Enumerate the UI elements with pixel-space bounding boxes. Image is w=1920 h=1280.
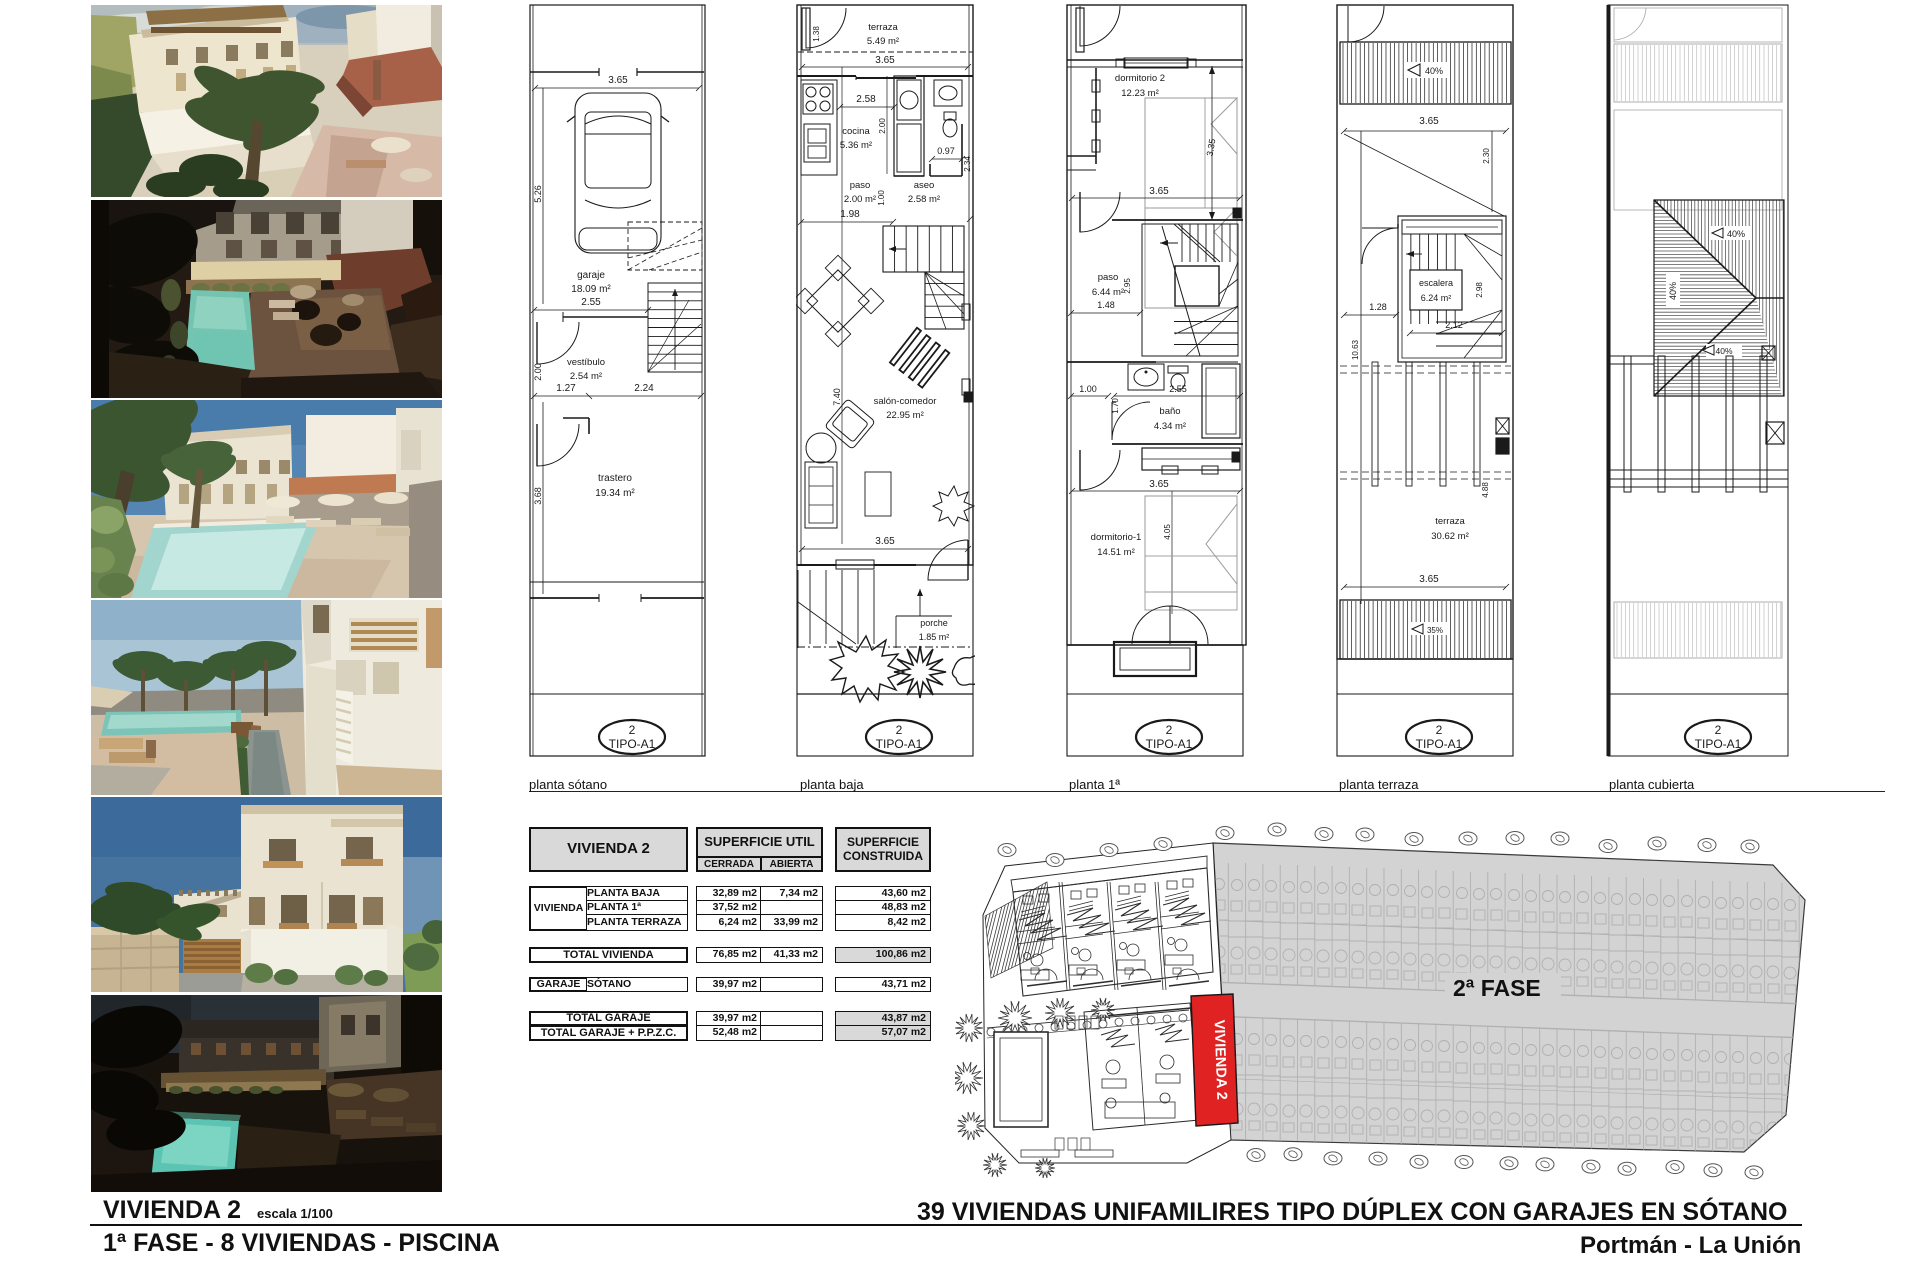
svg-text:aseo: aseo (914, 180, 935, 191)
svg-text:1.28: 1.28 (1369, 302, 1387, 312)
svg-text:3.35: 3.35 (1205, 138, 1218, 157)
svg-text:1.48: 1.48 (1097, 300, 1115, 310)
svg-text:12.23 m²: 12.23 m² (1121, 88, 1159, 99)
svg-text:1.00: 1.00 (877, 190, 886, 206)
svg-text:VIVIENDA 2: VIVIENDA 2 (1211, 1020, 1230, 1101)
svg-text:2.54 m²: 2.54 m² (570, 371, 602, 382)
svg-text:TIPO-A1: TIPO-A1 (1146, 737, 1193, 751)
svg-text:18.09 m²: 18.09 m² (571, 284, 611, 295)
svg-text:6.24 m²: 6.24 m² (1421, 293, 1452, 303)
svg-text:3.65: 3.65 (1149, 186, 1169, 197)
svg-text:40%: 40% (1727, 229, 1745, 239)
svg-text:2.00: 2.00 (533, 363, 543, 381)
svg-text:2.30: 2.30 (1482, 148, 1491, 164)
svg-text:30.62 m²: 30.62 m² (1431, 531, 1469, 542)
svg-text:3.68: 3.68 (533, 487, 543, 505)
svg-text:vestíbulo: vestíbulo (567, 357, 605, 368)
svg-text:terraza: terraza (1435, 516, 1465, 527)
svg-text:trastero: trastero (598, 473, 632, 484)
svg-text:2.00: 2.00 (878, 118, 887, 134)
svg-text:7.40: 7.40 (832, 388, 842, 406)
svg-text:1.38: 1.38 (812, 26, 821, 42)
svg-text:2.58: 2.58 (856, 94, 876, 105)
svg-text:14.51 m²: 14.51 m² (1097, 547, 1135, 558)
svg-text:2.12: 2.12 (1445, 320, 1463, 330)
svg-text:2: 2 (629, 723, 636, 737)
svg-text:5.49 m²: 5.49 m² (867, 36, 899, 47)
svg-text:cocina: cocina (842, 126, 870, 137)
svg-text:2.55: 2.55 (581, 297, 601, 308)
svg-text:TIPO-A1: TIPO-A1 (609, 737, 656, 751)
svg-text:3.65: 3.65 (875, 536, 895, 547)
svg-text:2.58 m²: 2.58 m² (908, 194, 940, 205)
svg-text:2.95: 2.95 (1123, 278, 1132, 294)
svg-text:garaje: garaje (577, 270, 605, 281)
svg-text:2ª FASE: 2ª FASE (1453, 975, 1541, 1001)
svg-text:2.98: 2.98 (1475, 282, 1484, 298)
svg-text:2: 2 (1715, 723, 1722, 737)
svg-text:2: 2 (1436, 723, 1443, 737)
svg-text:3.65: 3.65 (1149, 479, 1169, 490)
svg-text:3.65: 3.65 (608, 75, 628, 86)
svg-text:salón-comedor: salón-comedor (874, 396, 937, 407)
svg-text:3.65: 3.65 (1419, 574, 1439, 585)
svg-text:4.34 m²: 4.34 m² (1154, 421, 1186, 432)
svg-text:2: 2 (1166, 723, 1173, 737)
svg-text:0.97: 0.97 (937, 146, 955, 156)
svg-text:TIPO-A1: TIPO-A1 (1416, 737, 1463, 751)
svg-text:22.95 m²: 22.95 m² (886, 410, 924, 421)
svg-text:5.26: 5.26 (533, 185, 543, 203)
svg-text:3.65: 3.65 (875, 55, 895, 66)
svg-text:2.24: 2.24 (634, 383, 654, 394)
svg-text:1.00: 1.00 (1079, 384, 1097, 394)
svg-text:escalera: escalera (1419, 278, 1453, 288)
svg-text:baño: baño (1159, 406, 1180, 417)
svg-text:40%: 40% (1668, 282, 1678, 300)
svg-text:1.98: 1.98 (840, 209, 860, 220)
svg-text:4.05: 4.05 (1163, 524, 1172, 540)
svg-text:porche: porche (920, 618, 948, 628)
svg-text:5.36 m²: 5.36 m² (840, 140, 872, 151)
svg-text:dormitorio-1: dormitorio-1 (1091, 532, 1142, 543)
svg-text:1.27: 1.27 (556, 383, 576, 394)
svg-text:2.34: 2.34 (963, 156, 972, 172)
svg-text:2.00 m²: 2.00 m² (844, 194, 876, 205)
svg-text:40%: 40% (1425, 66, 1443, 76)
svg-text:40%: 40% (1715, 346, 1732, 356)
svg-text:19.34 m²: 19.34 m² (595, 488, 635, 499)
svg-text:2.55: 2.55 (1169, 384, 1187, 394)
svg-text:terraza: terraza (868, 22, 898, 33)
svg-text:paso: paso (850, 180, 871, 191)
svg-text:paso: paso (1098, 272, 1119, 283)
svg-text:3.65: 3.65 (1419, 116, 1439, 127)
svg-text:2: 2 (896, 723, 903, 737)
svg-text:dormitorio 2: dormitorio 2 (1115, 73, 1165, 84)
svg-text:1.85 m²: 1.85 m² (919, 632, 950, 642)
svg-text:TIPO-A1: TIPO-A1 (876, 737, 923, 751)
svg-text:4.88: 4.88 (1481, 482, 1490, 498)
svg-text:TIPO-A1: TIPO-A1 (1695, 737, 1742, 751)
svg-text:35%: 35% (1427, 626, 1443, 635)
svg-text:10.63: 10.63 (1351, 339, 1360, 360)
svg-text:6.44 m²: 6.44 m² (1092, 287, 1124, 298)
